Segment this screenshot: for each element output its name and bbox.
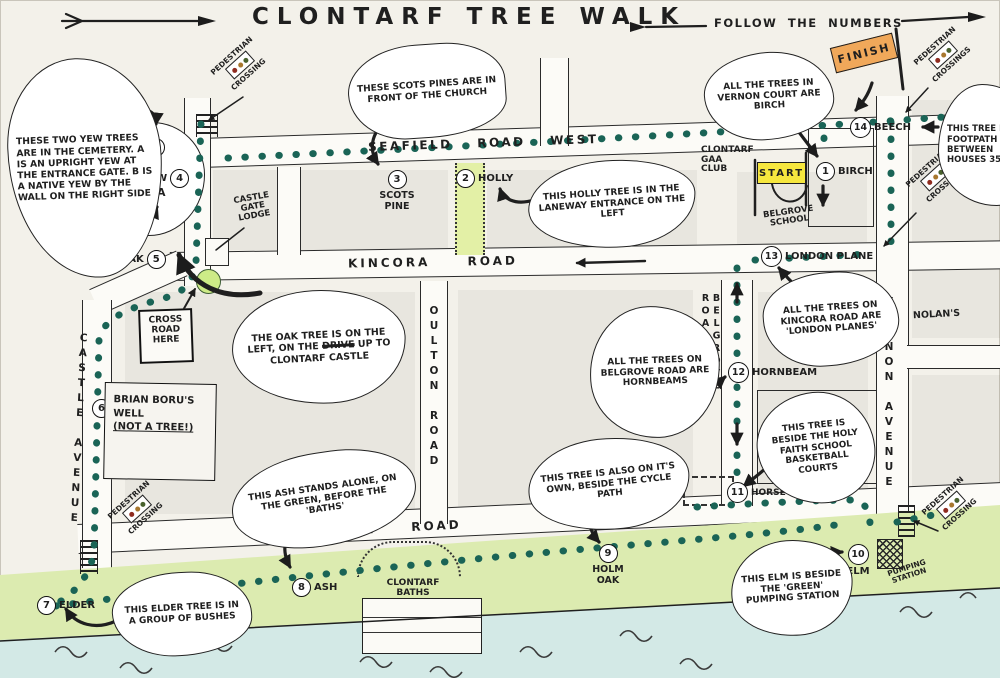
bubble-elder-text: THIS ELDER TREE IS IN A GROUP OF BUSHES — [121, 600, 244, 628]
zebra-crossing-marks — [196, 114, 218, 137]
stop-13-number: 13 — [761, 246, 782, 267]
oak-tree-marker — [196, 269, 221, 294]
bubble-ash-text: THIS ASH STANDS ALONE, ON THE GREEN, BEF… — [239, 471, 410, 527]
zebra-crossing-marks — [80, 540, 98, 574]
stop-7-label: ELDER — [59, 600, 95, 611]
stop-9-holm-oak: 9 HOLM OAK — [580, 544, 636, 586]
stop-13-label: LONDON PLANE — [785, 251, 873, 262]
stop-5-number: 5 — [147, 250, 166, 269]
stop-10-number: 10 — [848, 544, 869, 565]
bubble-cycle-path-text: THIS TREE IS ALSO ON IT'S OWN, BESIDE TH… — [536, 460, 683, 508]
page-subtitle: FOLLOW THE NUMBERS — [714, 17, 903, 29]
stop-2-label: HOLLY — [478, 173, 513, 184]
stop-7-elder: 7 ELDER — [37, 596, 95, 615]
bubble-oak-text: THE OAK TREE IS ON THE LEFT, ON THE DRIV… — [240, 326, 398, 369]
road-nolans-lane — [907, 345, 1000, 369]
brian-boru-well-box: BRIAN BORU'S WELL (NOT A TREE!) — [103, 382, 217, 481]
castle-gate-lodge-building — [205, 238, 229, 266]
stop-9-number: 9 — [599, 544, 618, 563]
stop-8-ash: 8 ASH — [292, 578, 337, 597]
finish-flag-pole — [896, 29, 903, 89]
pedestrian-crossing-top-left: PEDESTRIAN CROSSING — [203, 29, 278, 101]
stop-4a-number: 4 — [170, 169, 189, 188]
stop-3-label: SCOTS PINE — [374, 190, 420, 212]
stop-8-number: 8 — [292, 578, 311, 597]
start-banner: START — [757, 162, 806, 184]
stop-1-birch: 1 BIRCH — [816, 162, 873, 181]
stop-11-number: 11 — [727, 482, 748, 503]
stop-1-label: BIRCH — [838, 166, 873, 177]
bubble-scots-pine-text: THESE SCOTS PINES ARE IN FRONT OF THE CH… — [356, 75, 497, 107]
stop-14-number: 14 — [850, 117, 871, 138]
stop-8-label: ASH — [314, 582, 337, 593]
pedestrian-crossings-top-right: PEDESTRIAN CROSSINGS — [906, 19, 981, 91]
clontarf-baths-building — [362, 598, 482, 654]
title-arrow-left — [62, 14, 216, 28]
clontarf-tree-walk-map: CLONTARF TREE WALK FOLLOW THE NUMBERS SE… — [0, 0, 1000, 678]
bubble-holly-text: THIS HOLLY TREE IS IN THE LANEWAY ENTRAN… — [536, 182, 688, 225]
stop-12-hornbeam: 12 HORNBEAM — [728, 362, 817, 383]
bubble-holy-faith-text: THIS TREE IS BESIDE THE HOLY FAITH SCHOO… — [763, 416, 868, 480]
gaa-club-label: CLONTARF GAA CLUB — [701, 146, 741, 175]
stop-1-number: 1 — [816, 162, 835, 181]
bubble-yew: THESE TWO YEW TREES ARE IN THE CEMETERY.… — [4, 55, 166, 280]
stop-6-note: (NOT A TREE!) — [113, 421, 193, 433]
stop-12-number: 12 — [728, 362, 749, 383]
road-label-oulton: OULTON ROAD — [428, 305, 440, 510]
bubble-yew-text: THESE TWO YEW TREES ARE IN THE CEMETERY.… — [16, 132, 154, 204]
finish-flag: FINISH — [830, 33, 898, 74]
stop-2-number: 2 — [456, 169, 475, 188]
stop-6-label: BRIAN BORU'S WELL — [113, 394, 194, 419]
stop-7-number: 7 — [37, 596, 56, 615]
stop-9-label: HOLM OAK — [580, 564, 636, 586]
stop-2-holly: 2 HOLLY — [456, 169, 513, 188]
stop-13-london-plane: 13 LONDON PLANE — [761, 246, 873, 267]
zebra-crossing-marks — [898, 505, 915, 537]
bubble-scots-pine: THESE SCOTS PINES ARE IN FRONT OF THE CH… — [345, 39, 509, 144]
bubble-belgrove-trees-text: ALL THE TREES ON BELGROVE ROAD ARE HORNB… — [598, 354, 711, 391]
road-belgrove — [721, 280, 753, 506]
bubble-elm-text: THIS ELM IS BESIDE THE 'GREEN' PUMPING S… — [739, 568, 845, 608]
stop-14-label: BEECH — [874, 122, 911, 133]
stop-12-label: HORNBEAM — [752, 367, 817, 378]
stop-14-beech: 14 BEECH — [850, 117, 911, 138]
arrow-finish-to-beech — [856, 83, 872, 110]
stop-3-scots-pine: 3 SCOTS PINE — [374, 170, 420, 212]
cross-road-here-sign: CROSS ROAD HERE — [138, 308, 194, 364]
bubble-kincora-trees-text: ALL THE TREES ON KINCORA ROAD ARE 'LONDO… — [771, 298, 891, 339]
clontarf-baths-label: CLONTARF BATHS — [374, 579, 452, 598]
stop-3-number: 3 — [388, 170, 407, 189]
subtitle-arrow-right — [902, 12, 986, 22]
bubble-vernon-court-text: ALL THE TREES IN VERNON COURT ARE BIRCH — [712, 77, 826, 116]
page-title: CLONTARF TREE WALK — [252, 5, 686, 30]
baths-dotted-arc — [357, 541, 461, 577]
road-side-street — [277, 167, 301, 255]
bubble-footpath-text: THIS TREE IS ON FOOTPATH BETWEEN HOUSES … — [947, 124, 1000, 165]
